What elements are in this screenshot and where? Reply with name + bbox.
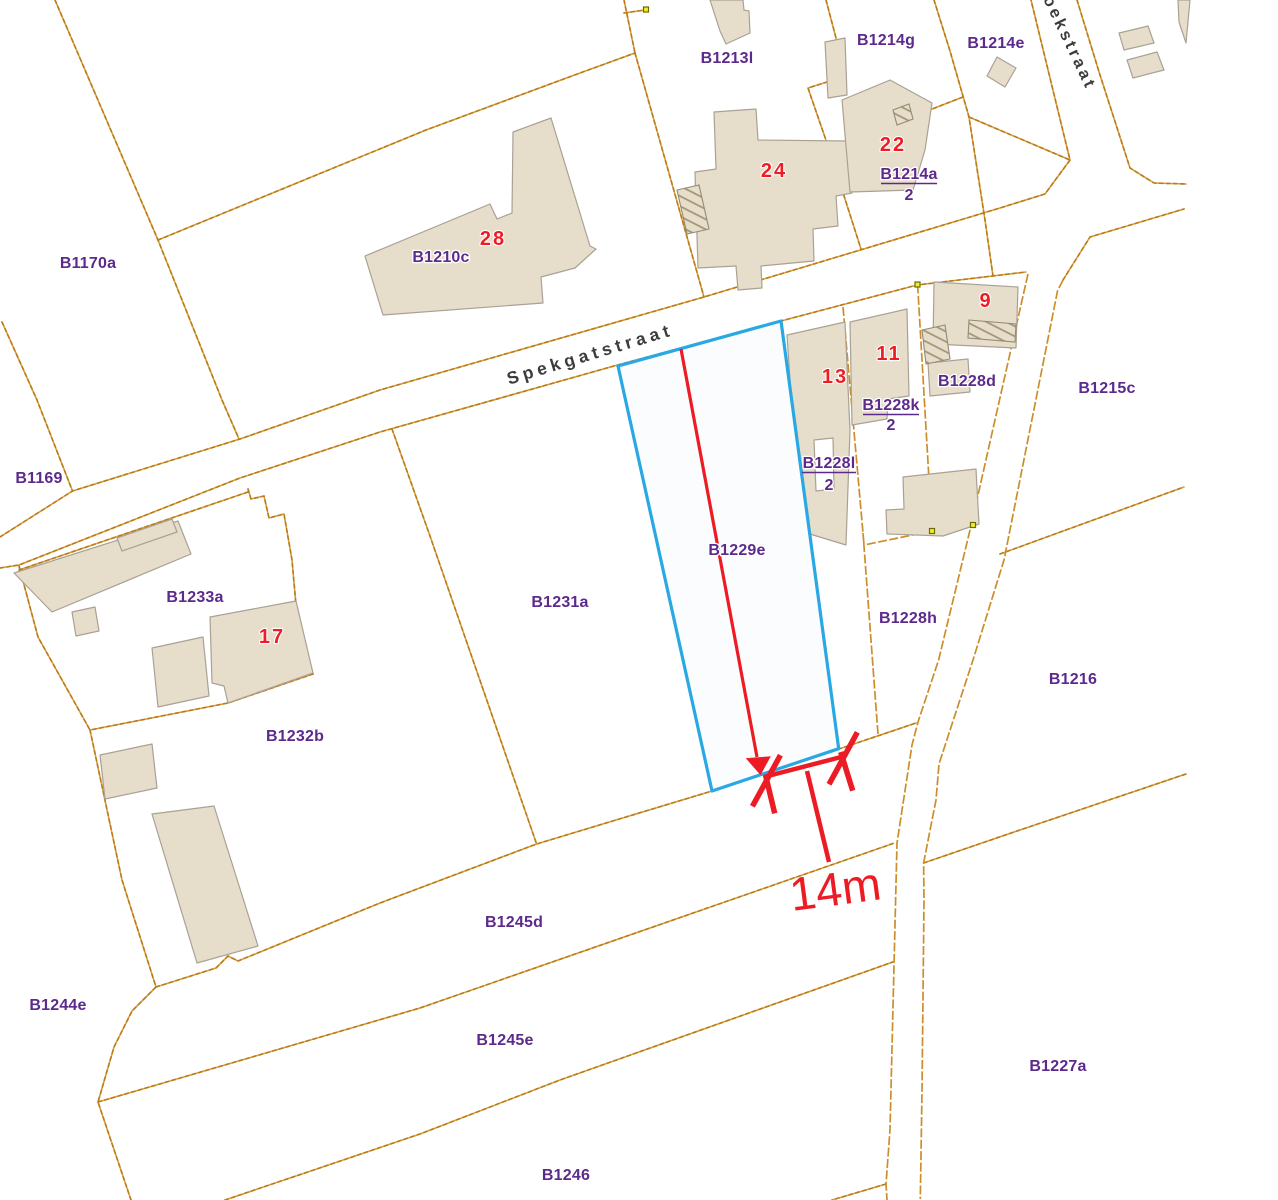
svg-text:B1213l: B1213l [701,50,754,67]
svg-text:B1246: B1246 [542,1167,590,1184]
svg-text:B1210c: B1210c [412,249,469,266]
svg-text:B1228h: B1228h [879,610,937,627]
svg-text:22: 22 [880,134,906,156]
svg-text:B1244e: B1244e [29,997,86,1014]
svg-text:B1228d: B1228d [938,373,996,390]
svg-text:B1214e: B1214e [967,35,1024,52]
svg-text:B1229e: B1229e [708,542,765,559]
svg-text:2: 2 [904,187,913,204]
svg-text:B1214g: B1214g [857,32,915,49]
svg-text:B1216: B1216 [1049,671,1097,688]
svg-text:B1228k: B1228k [862,397,919,414]
svg-text:B1233a: B1233a [166,589,223,606]
svg-text:11: 11 [876,343,901,365]
svg-text:B1227a: B1227a [1029,1058,1086,1075]
svg-text:B1170a: B1170a [60,255,116,272]
svg-text:9: 9 [979,290,992,312]
svg-text:B1228l: B1228l [803,455,856,472]
svg-text:B1215c: B1215c [1078,380,1135,397]
svg-text:2: 2 [824,477,833,494]
svg-text:2: 2 [886,417,895,434]
svg-text:24: 24 [761,160,787,182]
svg-text:B1231a: B1231a [531,594,588,611]
svg-text:B1214a: B1214a [880,166,937,183]
svg-text:13: 13 [822,366,848,388]
svg-text:B1245e: B1245e [476,1032,533,1049]
svg-text:B1169: B1169 [15,470,62,487]
svg-text:B1232b: B1232b [266,728,324,745]
svg-text:28: 28 [480,228,506,250]
svg-text:B1245d: B1245d [485,914,543,931]
svg-text:17: 17 [259,626,285,648]
